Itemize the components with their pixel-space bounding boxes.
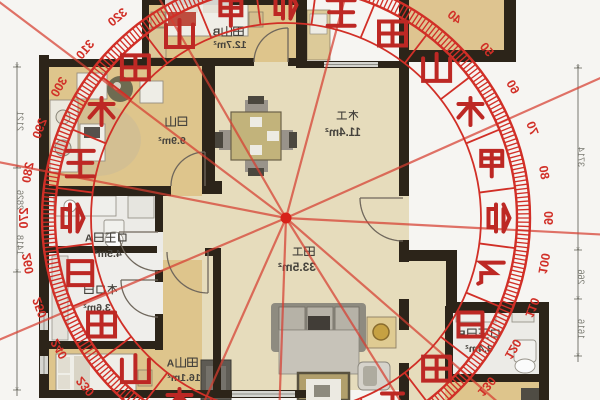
svg-text:11.4m²: 11.4m²	[325, 127, 361, 139]
svg-text:270: 270	[17, 208, 31, 229]
svg-text:266: 266	[576, 269, 586, 284]
svg-text:1418: 1418	[15, 235, 25, 255]
svg-text:4.5m²: 4.5m²	[94, 248, 122, 260]
svg-text:3714: 3714	[576, 147, 586, 167]
svg-text:90: 90	[541, 211, 555, 225]
svg-text:16.1m²: 16.1m²	[167, 372, 201, 384]
svg-text:80: 80	[536, 164, 552, 180]
svg-text:A: A	[166, 358, 174, 370]
svg-text:9.9m²: 9.9m²	[158, 135, 186, 147]
svg-text:2121: 2121	[15, 111, 25, 131]
svg-text:12.7m²: 12.7m²	[213, 39, 247, 51]
svg-text:1616: 1616	[576, 319, 586, 339]
